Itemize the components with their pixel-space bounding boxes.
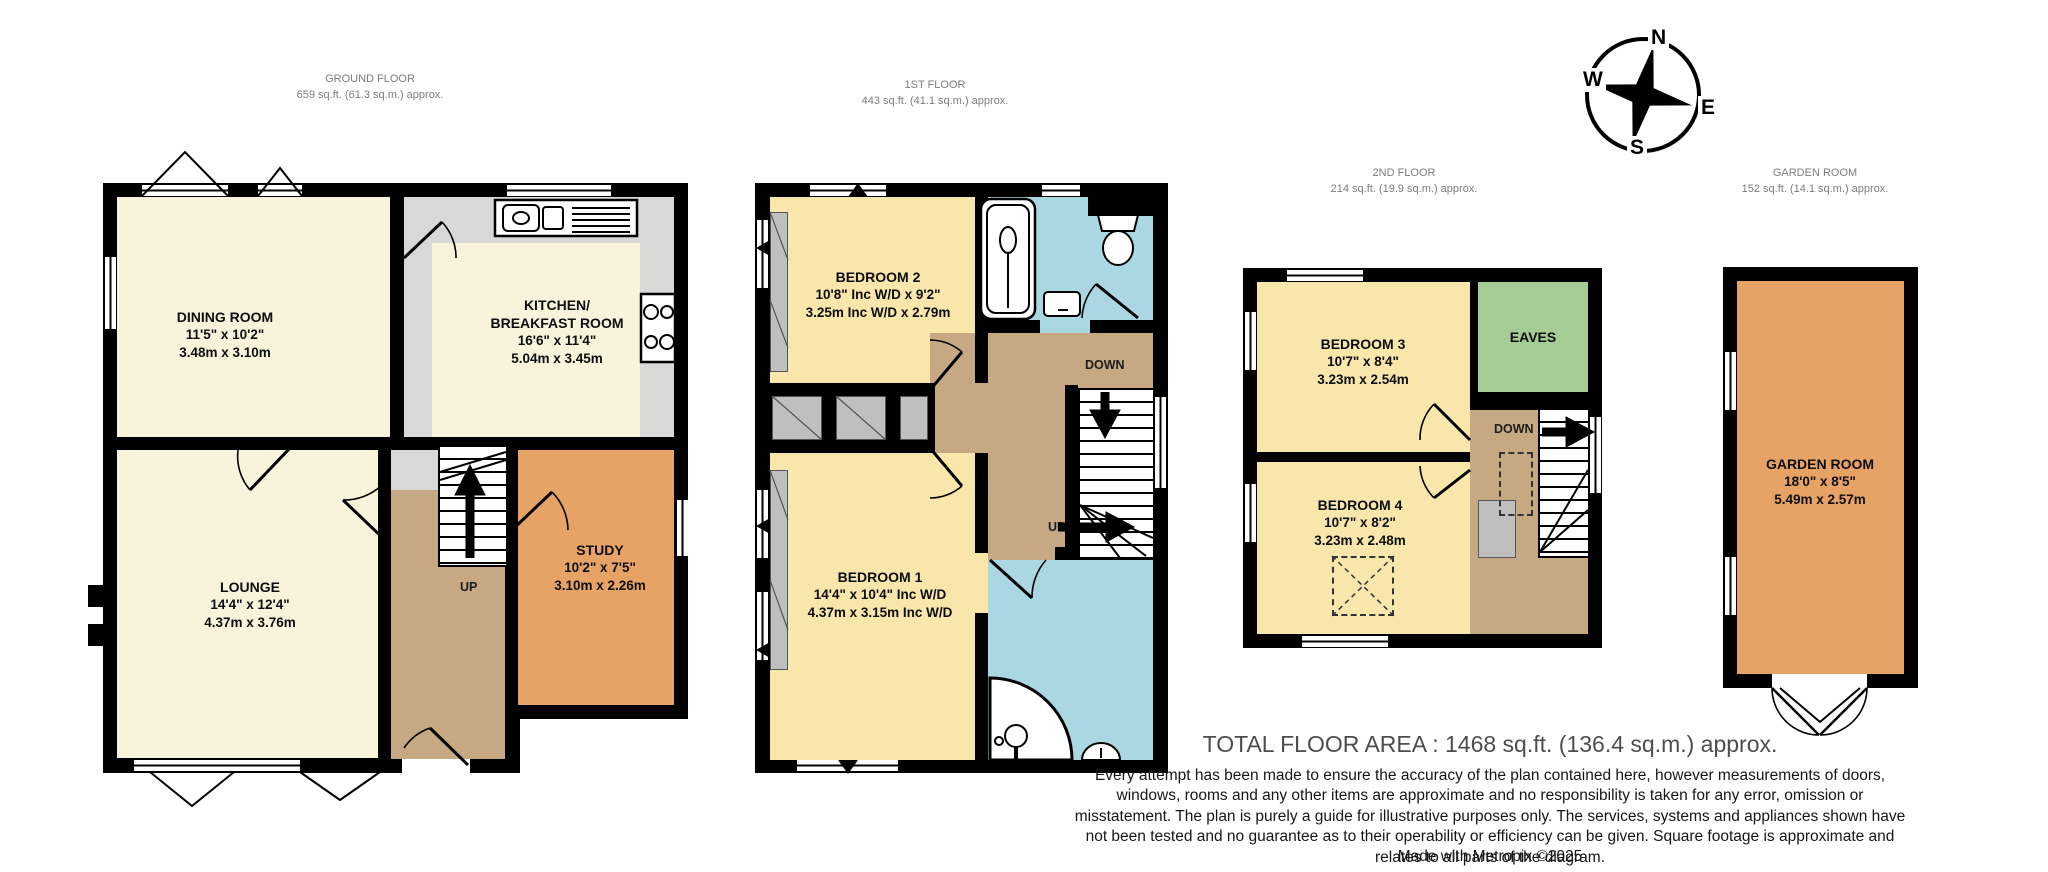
bedroom2-window-top bbox=[808, 185, 888, 196]
dining-room bbox=[117, 197, 390, 437]
wall-bedroom1-right-b bbox=[975, 613, 988, 760]
garden-room bbox=[1737, 281, 1904, 674]
bedroom1-wardrobe bbox=[770, 470, 788, 670]
wardrobe-cell-1 bbox=[772, 396, 822, 440]
garden-room-title-name: GARDEN ROOM bbox=[1715, 166, 1915, 182]
wall-bathroom-bottom-b bbox=[1090, 320, 1168, 333]
eaves bbox=[1478, 282, 1588, 392]
chimney-bump-a bbox=[88, 585, 103, 607]
bedroom-1 bbox=[770, 453, 988, 760]
credit-text: Made with Metropix ©2025 bbox=[1068, 848, 1912, 866]
bathroom-corner-block bbox=[1088, 183, 1168, 216]
garden-room-title-area: 152 sq.ft. (14.1 sq.m.) approx. bbox=[1715, 182, 1915, 198]
bedroom4-skylight bbox=[1332, 556, 1394, 616]
first-stairs bbox=[1078, 388, 1155, 560]
second-stairs bbox=[1538, 408, 1590, 558]
bedroom-3 bbox=[1257, 282, 1470, 452]
ground-hall-landing bbox=[391, 450, 438, 490]
first-stairs-up-label: UP bbox=[1048, 520, 1065, 534]
second-floor-title: 2ND FLOOR 214 sq.ft. (19.9 sq.m.) approx… bbox=[1304, 166, 1504, 198]
second-stairs-down-label: DOWN bbox=[1494, 422, 1534, 436]
dining-window-top-2 bbox=[256, 185, 304, 196]
wall-mid-c bbox=[580, 437, 688, 450]
stairs-window-right bbox=[1155, 395, 1166, 490]
wall-bedroom3-4 bbox=[1257, 452, 1425, 462]
bedroom2-window-left bbox=[757, 218, 768, 290]
wall-stairs-left bbox=[1065, 385, 1078, 560]
wall-bedroom1-right-a bbox=[975, 453, 988, 553]
bedroom4-window-left bbox=[1245, 482, 1256, 544]
bedroom3-window-left bbox=[1245, 310, 1256, 372]
compass-west-label: W bbox=[1580, 68, 1606, 92]
second-hatch-dashed bbox=[1499, 452, 1533, 516]
first-floor-title: 1ST FLOOR 443 sq.ft. (41.1 sq.m.) approx… bbox=[835, 78, 1035, 110]
first-floor-title-name: 1ST FLOOR bbox=[835, 78, 1035, 94]
garden-door-gap bbox=[1772, 674, 1867, 688]
wall-dining-kitchen-b bbox=[390, 312, 404, 437]
bedroom4-window-bottom bbox=[1300, 636, 1390, 647]
dining-window-top-1 bbox=[140, 185, 230, 196]
ground-outside-notch bbox=[520, 719, 688, 773]
kitchen-breakfast-area bbox=[432, 243, 640, 437]
ground-floor-title-name: GROUND FLOOR bbox=[270, 72, 470, 88]
bedroom3-window-top bbox=[1285, 270, 1365, 281]
wall-study-bottom bbox=[505, 705, 688, 719]
wall-bedroom2-right bbox=[975, 197, 988, 383]
study-window-right bbox=[677, 498, 688, 558]
bathroom-window-top bbox=[1040, 185, 1082, 196]
compass-east-label: E bbox=[1698, 96, 1718, 120]
kitchen-window-top bbox=[505, 185, 613, 196]
wardrobe-cell-3 bbox=[900, 396, 928, 440]
wall-dining-kitchen-a bbox=[390, 183, 404, 255]
total-floor-area: TOTAL FLOOR AREA : 1468 sq.ft. (136.4 sq… bbox=[1075, 731, 1905, 758]
garden-window-left-2 bbox=[1725, 555, 1736, 617]
ground-floor-title-area: 659 sq.ft. (61.3 sq.m.) approx. bbox=[270, 88, 470, 104]
dining-window-left bbox=[105, 255, 116, 331]
wall-bathroom-bottom-a bbox=[988, 320, 1040, 333]
bedroom1-window-left-1 bbox=[757, 488, 768, 560]
wardrobe-cell-2 bbox=[836, 396, 886, 440]
bedroom2-wardrobe bbox=[770, 212, 788, 372]
garden-room-title: GARDEN ROOM 152 sq.ft. (14.1 sq.m.) appr… bbox=[1715, 166, 1915, 198]
ground-stairs-up-label: UP bbox=[460, 580, 477, 594]
bedroom1-window-left-2 bbox=[757, 590, 768, 662]
front-door-gap bbox=[402, 759, 470, 773]
second-floor-title-name: 2ND FLOOR bbox=[1304, 166, 1504, 182]
bathroom bbox=[988, 197, 1153, 333]
shower-room bbox=[988, 560, 1153, 760]
compass-south-label: S bbox=[1627, 136, 1647, 160]
ground-stairs bbox=[438, 445, 508, 567]
ground-floor-title: GROUND FLOOR 659 sq.ft. (61.3 sq.m.) app… bbox=[270, 72, 470, 104]
wall-mid-a bbox=[103, 437, 235, 450]
lounge-window-bottom bbox=[132, 760, 302, 771]
bedroom1-window-bottom bbox=[795, 760, 900, 771]
second-floor-title-area: 214 sq.ft. (19.9 sq.m.) approx. bbox=[1304, 182, 1504, 198]
wall-eaves-left bbox=[1470, 282, 1478, 392]
first-stairs-down-label: DOWN bbox=[1085, 358, 1125, 372]
wall-lounge-hall-a bbox=[378, 450, 391, 472]
second-stairs-window bbox=[1590, 415, 1601, 495]
study bbox=[518, 450, 674, 705]
chimney-bump-b bbox=[88, 624, 103, 646]
compass-north-label: N bbox=[1648, 26, 1669, 50]
wall-lounge-hall-b bbox=[378, 540, 391, 773]
first-floor-title-area: 443 sq.ft. (41.1 sq.m.) approx. bbox=[835, 94, 1035, 110]
lounge bbox=[117, 450, 378, 758]
garden-window-left-1 bbox=[1725, 350, 1736, 412]
floorplan-page: GROUND FLOOR 659 sq.ft. (61.3 sq.m.) app… bbox=[0, 0, 2048, 872]
